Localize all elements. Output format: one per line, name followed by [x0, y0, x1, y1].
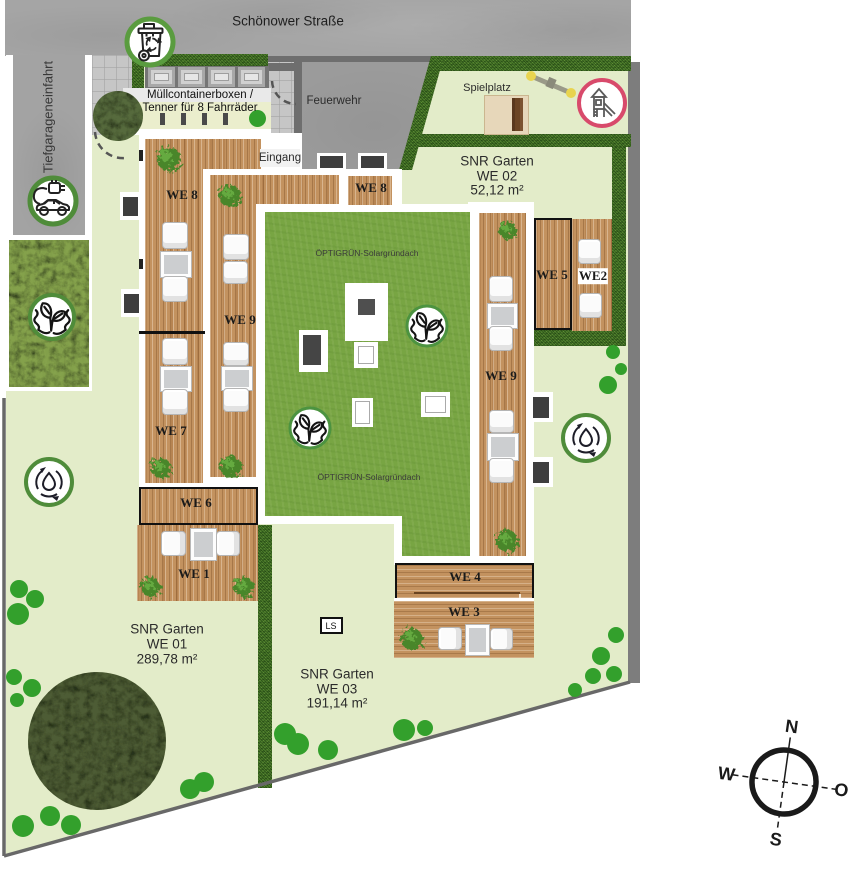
- svg-text:S: S: [769, 829, 784, 850]
- svg-text:W: W: [717, 763, 737, 785]
- svg-text:O: O: [833, 779, 850, 801]
- svg-text:N: N: [784, 716, 800, 738]
